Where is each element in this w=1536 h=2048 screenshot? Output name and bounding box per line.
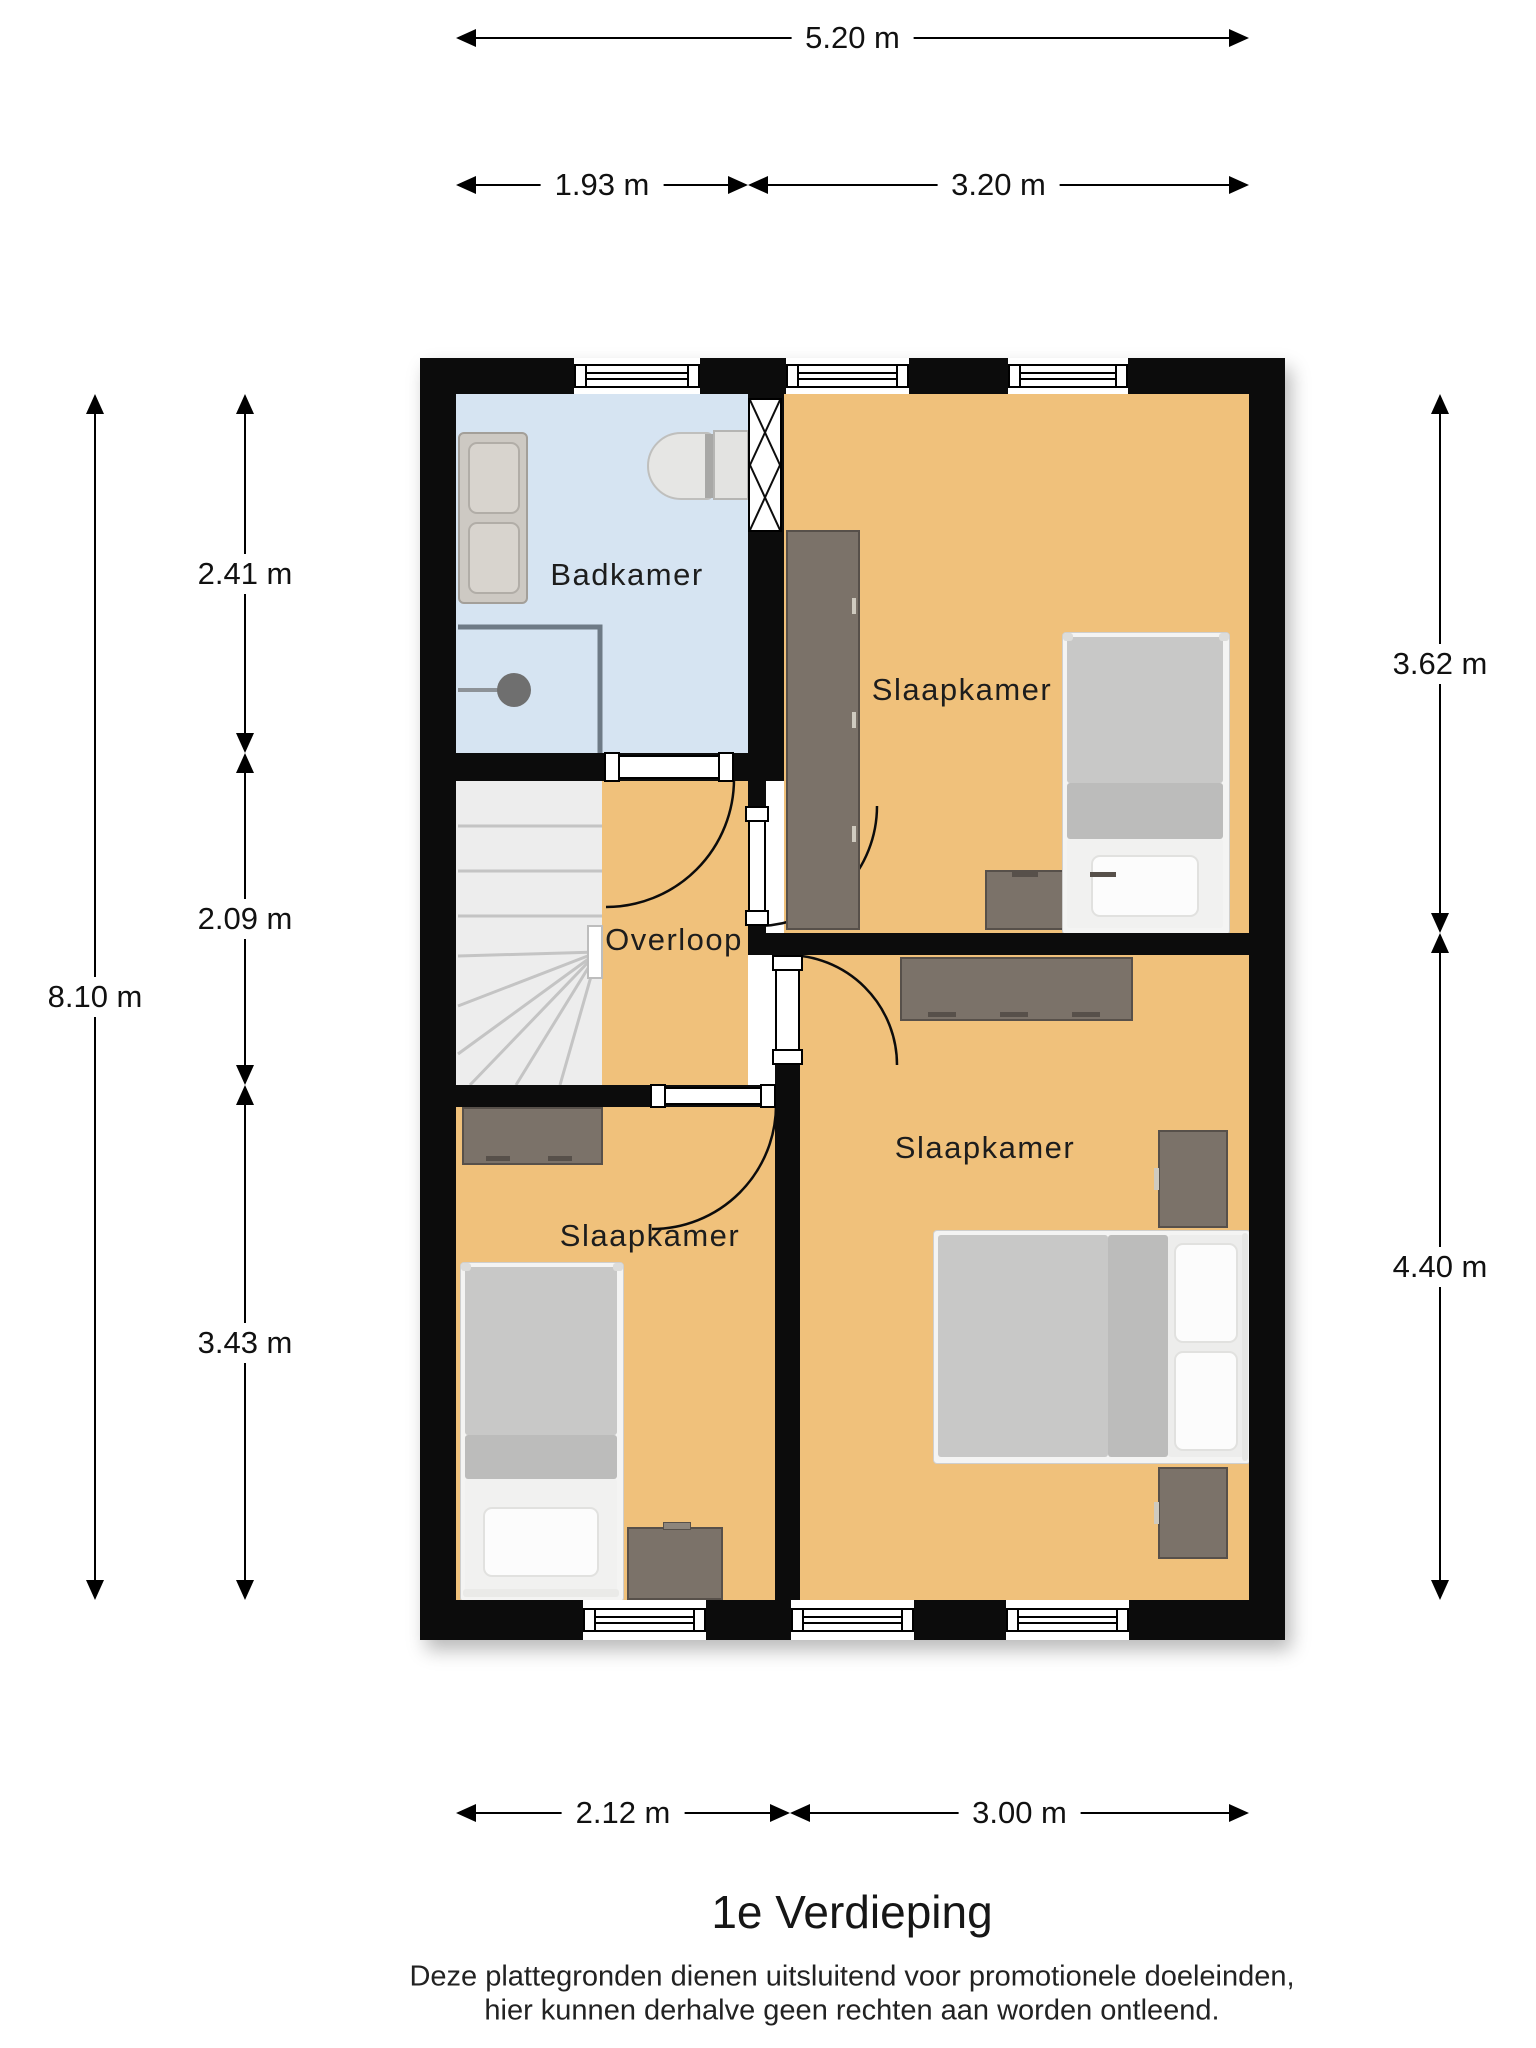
pillow [1174, 1351, 1238, 1451]
arrow-left-icon [790, 1804, 810, 1822]
arrow-right-icon [1229, 176, 1249, 194]
door-slaapkamer2 [775, 957, 800, 1063]
room-label-badkamer: Badkamer [550, 557, 703, 593]
ventilation-shaft [748, 398, 782, 532]
room-label-slaapkamer3: Slaapkamer [560, 1218, 740, 1254]
wall-left [420, 358, 456, 1640]
desk-handle [548, 1156, 572, 1161]
bed-post [1219, 633, 1229, 641]
arrow-down-icon [86, 1580, 104, 1600]
window-frame-cap [583, 1608, 596, 1632]
dimension-value: 2.41 m [184, 554, 307, 594]
window-frame-cap [693, 1608, 706, 1632]
arrow-left-icon [456, 29, 476, 47]
stairs-area [456, 781, 602, 1085]
arrow-right-icon [1229, 1804, 1249, 1822]
single-bed [1062, 632, 1230, 935]
dimension-value: 3.00 m [958, 1793, 1081, 1833]
toilet-seat-divider [705, 434, 713, 498]
dresser [627, 1527, 723, 1600]
bed-duvet [938, 1235, 1108, 1457]
wardrobe [786, 530, 860, 930]
dimension-value: 2.09 m [184, 899, 307, 939]
window-frame-cap [791, 1608, 804, 1632]
arrow-down-icon [236, 1065, 254, 1085]
arrow-left-icon [748, 176, 768, 194]
bed-duvet-fold [465, 1435, 617, 1479]
window-glazing [799, 364, 896, 388]
window-frame-cap [1115, 364, 1128, 388]
wall-right [1249, 358, 1285, 1640]
desk-handle [1072, 1012, 1100, 1017]
room-label-overloop: Overloop [605, 922, 743, 958]
wall-slaapkamer3-slaapkamer2 [775, 1107, 800, 1600]
toilet-bowl [647, 432, 713, 500]
window-frame-cap [1006, 1608, 1019, 1632]
pillow [1174, 1243, 1238, 1343]
footboard [463, 1589, 619, 1597]
window-frame-cap [896, 364, 909, 388]
wall-slaapkamer1-slaapkamer2 [748, 933, 1249, 955]
arrow-up-icon [86, 394, 104, 414]
arrow-down-icon [1431, 1580, 1449, 1600]
disclaimer-line1: Deze plattegronden dienen uitsluitend vo… [409, 1961, 1294, 1994]
window-frame-cap [901, 1608, 914, 1632]
desk-handle [928, 1012, 956, 1017]
window-frame-cap [1116, 1608, 1129, 1632]
bed-duvet-fold [1108, 1235, 1168, 1457]
window-glazing [1019, 1608, 1116, 1632]
window-frame-cap [786, 364, 799, 388]
dimension-value: 3.43 m [184, 1323, 307, 1363]
pillow [483, 1507, 599, 1577]
wardrobe-handle [852, 826, 856, 842]
bed-post [1063, 633, 1073, 641]
disclaimer-line2: hier kunnen derhalve geen rechten aan wo… [484, 1995, 1219, 2028]
bed-duvet-fold [1067, 783, 1223, 839]
window-frame-cap [1008, 364, 1021, 388]
toilet-tank [713, 430, 749, 500]
nightstand-handle [1154, 1502, 1159, 1524]
arrow-down-icon [236, 1580, 254, 1600]
desk-handle [1012, 872, 1038, 877]
headboard [1242, 1233, 1248, 1461]
window-glazing [804, 1608, 901, 1632]
bed-post [613, 1263, 623, 1271]
sink-basin [468, 442, 520, 514]
pillow [1091, 855, 1199, 917]
window [1008, 358, 1128, 394]
single-bed [460, 1262, 624, 1602]
arrow-up-icon [1431, 933, 1449, 953]
bed-post [461, 1263, 471, 1271]
arrow-down-icon [1431, 913, 1449, 933]
nightstand [1158, 1467, 1228, 1559]
window [1006, 1600, 1129, 1640]
shaft-x-icon [750, 400, 780, 530]
arrow-down-icon [236, 733, 254, 753]
window [791, 1600, 914, 1640]
room-label-slaapkamer1: Slaapkamer [872, 672, 1052, 708]
desk [462, 1107, 603, 1165]
door-badkamer [606, 755, 732, 779]
window-frame-cap [574, 364, 587, 388]
floorplan-page: 5.20 m 1.93 m 3.20 m 8.10 m 2.41 m 2.09 … [0, 0, 1536, 2048]
dimension-value: 4.40 m [1379, 1247, 1502, 1287]
window-frame-cap [687, 364, 700, 388]
dimension-value: 3.62 m [1379, 644, 1502, 684]
arrow-left-icon [456, 1804, 476, 1822]
arrow-up-icon [236, 394, 254, 414]
door-slaapkamer1 [748, 808, 766, 924]
dimension-value: 1.93 m [541, 165, 664, 205]
sink-basin [468, 522, 520, 594]
window-glazing [587, 364, 687, 388]
double-bed [933, 1230, 1251, 1464]
window [583, 1600, 706, 1640]
arrow-up-icon [1431, 394, 1449, 414]
wardrobe-handle [852, 598, 856, 614]
bed-duvet [1067, 637, 1223, 783]
dimension-value: 8.10 m [34, 977, 157, 1017]
door-slaapkamer3 [652, 1087, 774, 1105]
floor-title: 1e Verdieping [711, 1885, 992, 1939]
window [786, 358, 909, 394]
arrow-right-icon [728, 176, 748, 194]
room-label-slaapkamer2: Slaapkamer [895, 1130, 1075, 1166]
bed-duvet [465, 1267, 617, 1435]
dimension-value: 3.20 m [937, 165, 1060, 205]
arrow-right-icon [770, 1804, 790, 1822]
dresser-handle [663, 1522, 691, 1530]
desk-handle [1090, 872, 1116, 877]
window-glazing [1021, 364, 1115, 388]
desk-handle [1000, 1012, 1028, 1017]
nightstand-handle [1154, 1168, 1159, 1190]
desk-handle [486, 1156, 510, 1161]
dimension-value: 5.20 m [791, 18, 914, 58]
window-glazing [596, 1608, 693, 1632]
arrow-right-icon [1229, 29, 1249, 47]
arrow-up-icon [236, 753, 254, 773]
arrow-left-icon [456, 176, 476, 194]
nightstand [1158, 1130, 1228, 1228]
window [574, 358, 700, 394]
dimension-value: 2.12 m [562, 1793, 685, 1833]
wardrobe-handle [852, 712, 856, 728]
arrow-up-icon [236, 1085, 254, 1105]
